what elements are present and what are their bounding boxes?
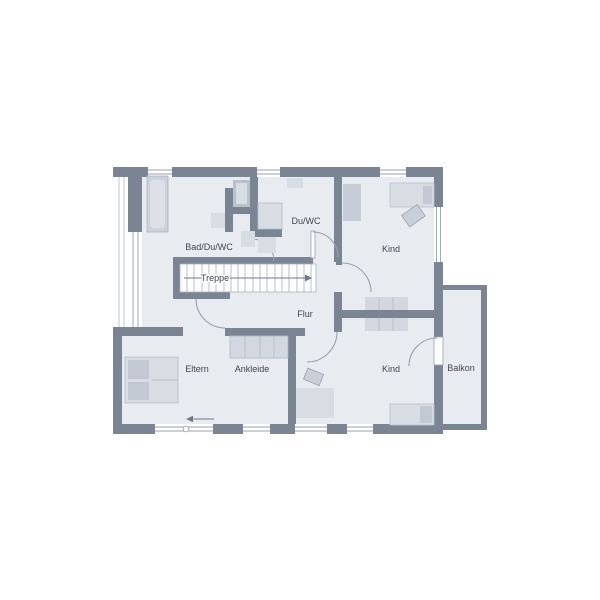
window-left	[130, 232, 142, 327]
ankleide-top-wall	[225, 328, 305, 336]
exterior-wall-left-lower	[113, 327, 122, 434]
kind-top-wall-vertical	[334, 167, 342, 262]
window-right	[434, 207, 443, 262]
label-eltern: Eltern	[185, 364, 209, 374]
duwc-door-leaf	[311, 231, 315, 258]
kind-bottom-bed-pillow	[420, 406, 432, 423]
window-bottom-3	[295, 424, 327, 434]
kind-divider-wall	[342, 310, 435, 318]
window-top-1	[148, 167, 172, 177]
eltern-top-wall	[113, 327, 183, 336]
ankleide-wardrobe-icon	[230, 336, 288, 358]
window-bottom-2	[243, 424, 270, 434]
duwc-shower-icon	[258, 203, 282, 229]
bath-partition-wall	[250, 167, 258, 237]
ankleide-divider-wall	[288, 336, 296, 424]
balcony-wall-bottom	[441, 424, 487, 430]
plumbing-wall-horizontal	[225, 207, 255, 214]
floor-plan-page: Bad/Du/WC Du/WC Kind Treppe Flur Eltern …	[0, 0, 600, 600]
flur-wall-vertical	[334, 292, 342, 332]
balcony-wall-top	[441, 285, 487, 290]
facade-lines-left	[119, 177, 124, 327]
eltern-pillow-2	[128, 382, 149, 400]
label-bad-du-wc: Bad/Du/WC	[185, 242, 233, 252]
kind-top-bed-pillow	[423, 186, 432, 204]
duwc-wc-icon	[258, 237, 276, 253]
exterior-wall-right	[434, 167, 443, 433]
label-kind-top: Kind	[382, 244, 400, 254]
shower-bad-inner	[236, 183, 247, 204]
bathtub-inner	[150, 180, 165, 228]
kind-bottom-desk-icon	[296, 388, 334, 418]
washbasin-right-icon	[241, 231, 255, 247]
kind-top-wardrobe-icon	[343, 184, 361, 221]
duwc-basin-icon	[287, 178, 303, 188]
washbasin-left-icon	[211, 213, 225, 228]
label-flur: Flur	[297, 309, 313, 319]
balcony-floor-area	[443, 290, 481, 424]
balcony	[441, 285, 487, 430]
kind-top-closet-icon	[365, 297, 408, 310]
label-du-wc: Du/WC	[292, 216, 322, 226]
label-balkon: Balkon	[447, 363, 475, 373]
window-top-3	[380, 167, 406, 177]
window-top-2	[257, 167, 280, 177]
label-ankleide: Ankleide	[235, 364, 270, 374]
balcony-door-leaf	[434, 337, 443, 365]
exterior-wall-left-pier	[128, 167, 142, 232]
kind-bottom-closet-icon	[365, 318, 408, 331]
floor-plan-drawing: Bad/Du/WC Du/WC Kind Treppe Flur Eltern …	[0, 0, 600, 600]
window-bottom-4	[347, 424, 373, 434]
balcony-wall-right	[481, 285, 487, 430]
window-detail-circle	[183, 426, 189, 432]
stair-bottom-wall	[173, 292, 230, 299]
eltern-pillow-1	[128, 360, 149, 379]
label-treppe: Treppe	[201, 273, 229, 283]
label-kind-bottom: Kind	[382, 364, 400, 374]
